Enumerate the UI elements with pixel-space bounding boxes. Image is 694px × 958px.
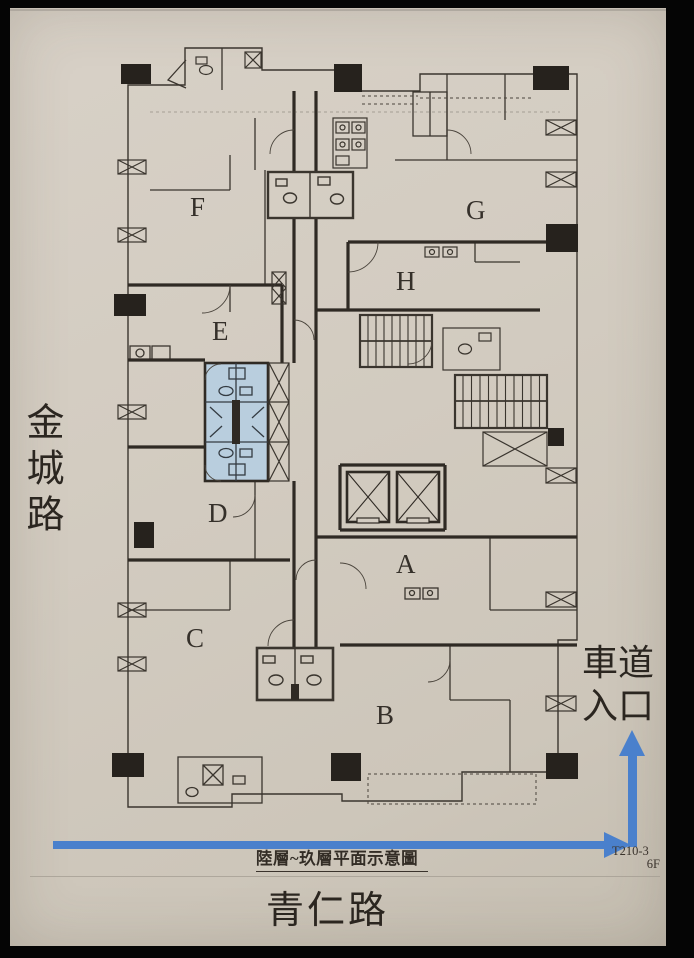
unit-label-C: C (186, 623, 204, 653)
driveway-arrow-vertical (628, 754, 637, 847)
driveway-line2: 入口 (582, 685, 664, 728)
elevator-shafts (347, 472, 439, 523)
driveway-entrance-label: 車道 入口 (582, 642, 664, 728)
unit-label-D: D (208, 498, 228, 528)
unit-label-G: G (466, 195, 486, 225)
unit-label-E: E (212, 316, 229, 346)
road-label-bottom: 青仁路 (266, 892, 389, 930)
unit-label-A: A (396, 549, 416, 579)
floor-number: 6F (634, 857, 660, 872)
highlighted-bath-core (205, 363, 289, 481)
unit-label-B: B (376, 700, 394, 730)
floor-plan-drawing: F G H E D A C B (0, 0, 694, 958)
driveway-arrow-up-head (619, 730, 645, 756)
stairs-1 (360, 315, 432, 367)
road-label-left: 金城路 (22, 402, 60, 540)
photo-frame: F G H E D A C B 金城路 車道 入口 陸層~玖層平面示意圖 T21… (0, 0, 694, 958)
interior-walls (128, 48, 577, 803)
stairs-2 (455, 375, 547, 428)
plan-title: 陸層~玖層平面示意圖 (256, 845, 428, 872)
duct-room (272, 272, 547, 466)
kitchen-stack (196, 52, 457, 257)
unit-label-H: H (396, 266, 416, 296)
driveway-line1: 車道 (582, 642, 664, 685)
unit-label-F: F (190, 192, 205, 222)
driveway-arrow-horizontal (53, 841, 607, 849)
bath-cluster-lower (257, 648, 333, 700)
bath-cluster-upper (268, 172, 353, 218)
